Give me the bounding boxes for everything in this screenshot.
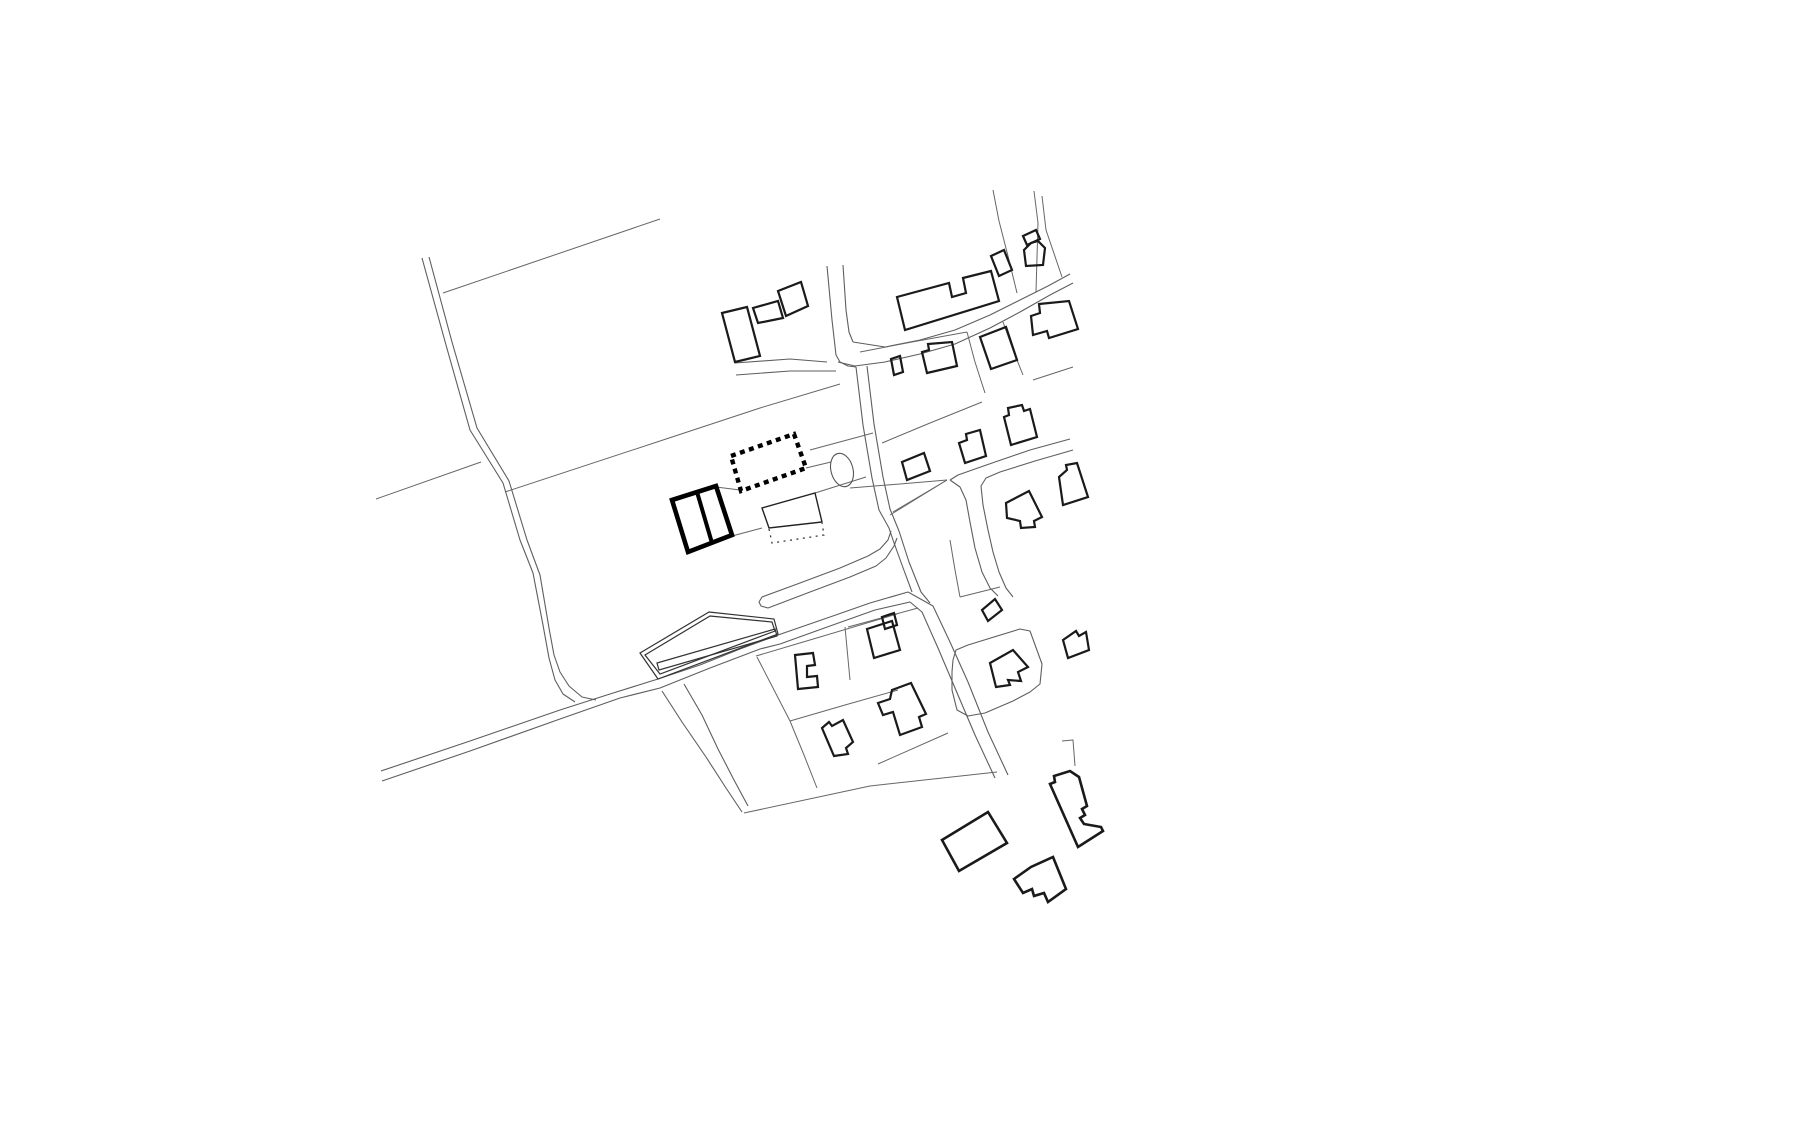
project-building-divider: [697, 492, 712, 543]
site-annex-dotted-ext: [769, 523, 824, 543]
parcel-junction-sw: [893, 480, 947, 512]
parcel-ne-short: [1033, 367, 1073, 380]
layer-project_dashed: [731, 434, 806, 491]
house-east-bump: [1004, 405, 1037, 445]
garden-strip-inner-edge: [645, 616, 775, 674]
barn-bottom-tall: [1050, 771, 1103, 847]
parcel-annex-ne: [815, 477, 866, 493]
field-line-nw: [443, 219, 660, 293]
barn-bottom-rect: [942, 812, 1007, 871]
field-line-w: [376, 462, 481, 499]
house-double-notch: [822, 720, 853, 756]
layer-project_bold: [672, 486, 732, 552]
house-bottom-notch: [1014, 857, 1066, 902]
road-upper-north-edge: [853, 274, 1070, 347]
road-village-n-e-edge: [843, 265, 853, 342]
driveway-loop: [952, 629, 1042, 716]
house-mid-square: [902, 453, 930, 480]
project-building-proposed-dashed: [731, 434, 806, 491]
house-ne-tab: [1063, 631, 1089, 658]
parcel-top-v1: [999, 221, 1017, 293]
parcel-houses-s: [790, 721, 817, 788]
parcel-bottom-long: [744, 772, 997, 813]
parcel-corner-mark: [1062, 740, 1075, 766]
project-building-existing: [672, 486, 732, 552]
site-plan-drawing: [0, 0, 1800, 1125]
house-mid-step2: [959, 430, 986, 463]
parcel-bottom-diag: [878, 733, 948, 764]
site-link-pond: [806, 462, 831, 468]
house-square-small: [982, 599, 1002, 621]
road-west-w-edge: [422, 258, 575, 702]
house-east-large: [1031, 301, 1078, 338]
road-spur-w-edge: [662, 691, 742, 812]
house-se-steps: [1006, 491, 1042, 528]
parcel-sq-w: [950, 540, 960, 597]
road-east-sw-edge: [950, 480, 998, 596]
parcel-pond-n: [810, 433, 873, 450]
road-spur-e-edge: [684, 684, 748, 806]
lane-site-s-edge: [736, 371, 836, 375]
parcel-mid-v: [845, 627, 850, 680]
site-plan: [0, 0, 1800, 1125]
pond-ellipse: [827, 451, 857, 490]
road-village-n-w-edge: [827, 266, 856, 367]
layer-parcel_lines: [376, 190, 1075, 813]
site-link-annex: [732, 528, 762, 536]
house-top-narrow: [991, 250, 1012, 276]
house-se-notch: [1059, 463, 1088, 505]
parcel-houses-mid: [790, 690, 898, 721]
house-mid-rect: [980, 327, 1017, 369]
road-west-e-edge: [429, 257, 596, 700]
lane-strip-n-edge: [759, 531, 897, 608]
site-annex-thin: [762, 493, 822, 528]
parcel-houses-w: [757, 657, 790, 721]
house-mid-step: [922, 342, 957, 373]
house-row-notch-right: [795, 653, 818, 689]
layer-dotted_outlines: [769, 523, 824, 543]
layer-light_buildings: [762, 493, 822, 528]
road-east-s-edge: [981, 450, 1073, 597]
parcel-top-v3: [1042, 196, 1062, 277]
field-line-long: [505, 384, 840, 492]
house-in-loop: [990, 650, 1028, 687]
building-long-notched: [897, 271, 999, 330]
house-nw-annex: [753, 301, 783, 323]
house-nw-square: [778, 282, 808, 316]
house-l-shape: [878, 683, 926, 735]
parcel-top-v4: [993, 190, 999, 221]
layer-buildings: [722, 230, 1103, 902]
parcel-junction-w: [850, 480, 947, 488]
site-link-dash-rect: [716, 487, 740, 490]
